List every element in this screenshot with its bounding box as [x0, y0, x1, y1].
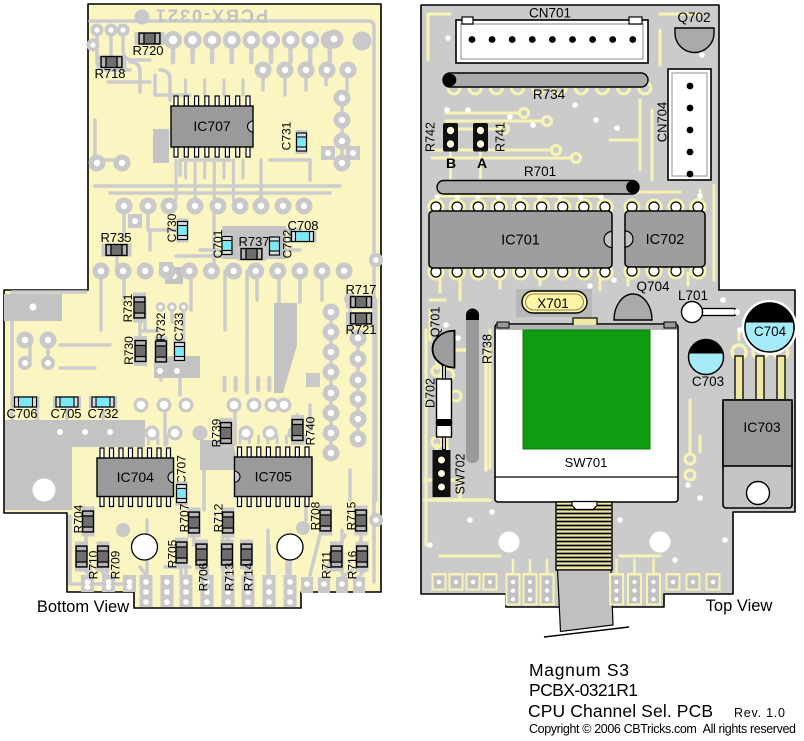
svg-text:R718: R718	[94, 66, 125, 81]
svg-text:R713: R713	[223, 562, 237, 591]
svg-text:Rev. 1.0: Rev. 1.0	[734, 706, 785, 720]
svg-text:IC705: IC705	[255, 468, 293, 484]
svg-text:Q701: Q701	[429, 307, 443, 338]
svg-text:Copyright © 2006 CBTricks.com: Copyright © 2006 CBTricks.com All rights…	[529, 722, 796, 736]
svg-text:IC702: IC702	[646, 232, 685, 248]
svg-text:R708: R708	[309, 501, 323, 530]
svg-text:R730: R730	[122, 336, 136, 365]
svg-text:SW702: SW702	[454, 453, 468, 494]
svg-text:C706: C706	[6, 406, 37, 421]
svg-text:IC704: IC704	[117, 469, 155, 485]
svg-text:C732: C732	[87, 406, 118, 421]
svg-text:C701: C701	[211, 229, 225, 258]
svg-text:CN704: CN704	[655, 102, 670, 142]
svg-text:R737: R737	[238, 234, 269, 249]
svg-text:R706: R706	[197, 562, 211, 591]
svg-text:R720: R720	[132, 43, 163, 58]
svg-text:C730: C730	[165, 213, 179, 242]
svg-text:Q704: Q704	[636, 279, 670, 294]
svg-text:R705: R705	[166, 539, 180, 568]
svg-text:R739: R739	[210, 418, 224, 447]
svg-text:IC707: IC707	[193, 118, 231, 134]
svg-text:R714: R714	[242, 562, 256, 591]
svg-text:Magnum S3: Magnum S3	[529, 660, 629, 680]
svg-text:R716: R716	[346, 550, 360, 579]
svg-text:Top View: Top View	[706, 597, 773, 615]
svg-text:PCBX-0321R1: PCBX-0321R1	[529, 680, 638, 700]
svg-text:R731: R731	[121, 293, 135, 322]
svg-text:R735: R735	[100, 230, 131, 245]
svg-text:SW701: SW701	[565, 455, 608, 470]
svg-text:R721: R721	[345, 322, 376, 337]
svg-text:R715: R715	[345, 501, 359, 530]
svg-text:C733: C733	[172, 312, 186, 341]
svg-text:R732: R732	[154, 312, 168, 341]
svg-text:C707: C707	[175, 455, 189, 484]
svg-text:IC703: IC703	[743, 419, 781, 435]
svg-text:R741: R741	[494, 122, 508, 152]
svg-text:R701: R701	[524, 164, 556, 179]
svg-text:R712: R712	[212, 503, 226, 532]
svg-text:C731: C731	[280, 121, 294, 150]
svg-text:R704: R704	[72, 504, 86, 533]
svg-text:IC701: IC701	[501, 233, 540, 249]
svg-text:R709: R709	[109, 550, 123, 579]
svg-text:CPU Channel Sel. PCB: CPU Channel Sel. PCB	[528, 701, 713, 721]
svg-text:D702: D702	[424, 378, 438, 408]
svg-text:CN701: CN701	[529, 6, 571, 21]
svg-text:Q702: Q702	[677, 10, 710, 25]
svg-text:A: A	[477, 155, 487, 171]
svg-text:L701: L701	[678, 288, 708, 303]
svg-text:PCBX-0321: PCBX-0321	[154, 6, 268, 26]
svg-text:R707: R707	[178, 503, 192, 532]
svg-text:C703: C703	[692, 374, 724, 389]
svg-text:R711: R711	[320, 551, 334, 579]
svg-text:R740: R740	[304, 416, 318, 445]
svg-text:X701: X701	[537, 296, 569, 311]
svg-text:Bottom View: Bottom View	[37, 598, 129, 616]
svg-text:C704: C704	[754, 324, 787, 339]
svg-text:R717: R717	[345, 282, 376, 297]
svg-text:C702: C702	[281, 229, 295, 258]
svg-text:R742: R742	[424, 122, 438, 152]
svg-text:R738: R738	[481, 334, 495, 364]
svg-text:B: B	[446, 155, 456, 171]
svg-text:R734: R734	[533, 87, 566, 102]
svg-text:C705: C705	[50, 406, 81, 421]
